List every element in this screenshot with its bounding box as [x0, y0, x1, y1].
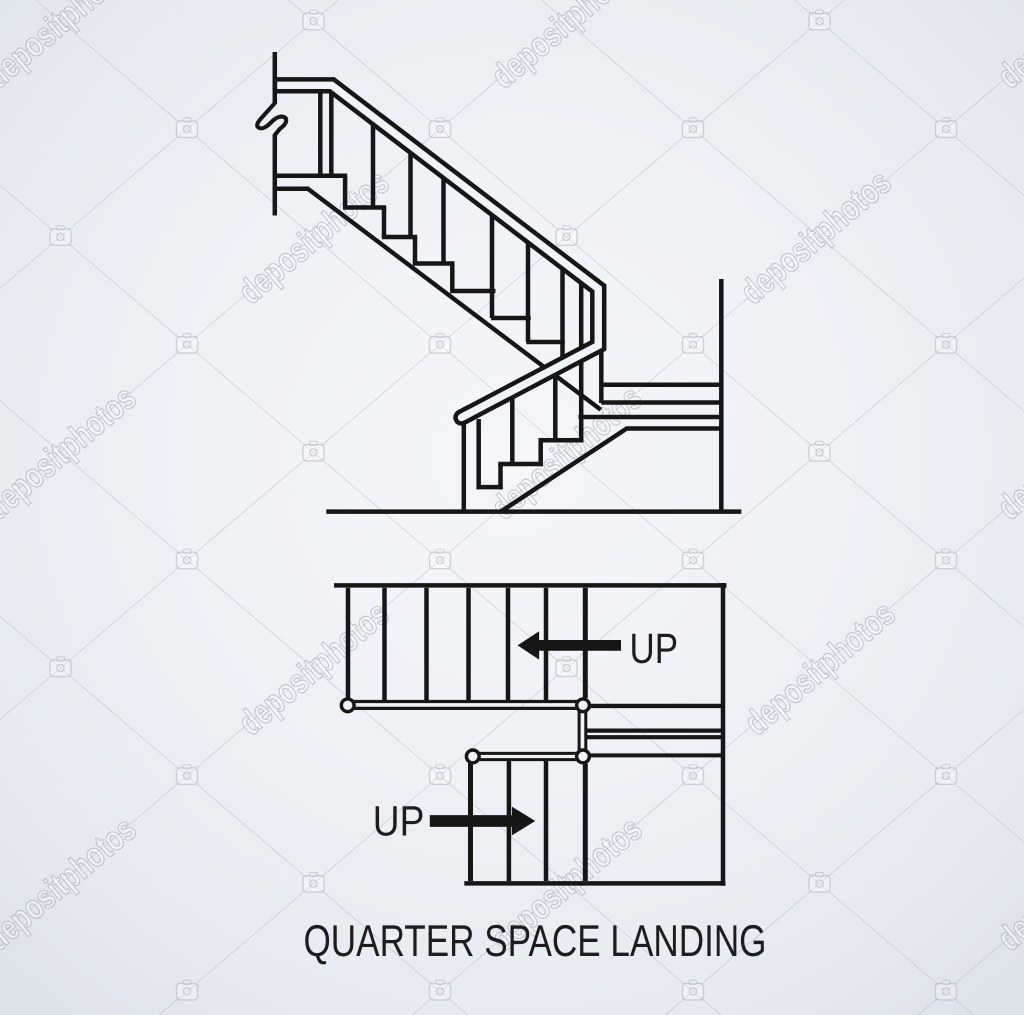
svg-text:UP: UP	[373, 798, 425, 845]
svg-text:UP: UP	[630, 626, 679, 673]
svg-text:QUARTER SPACE LANDING: QUARTER SPACE LANDING	[304, 917, 767, 966]
